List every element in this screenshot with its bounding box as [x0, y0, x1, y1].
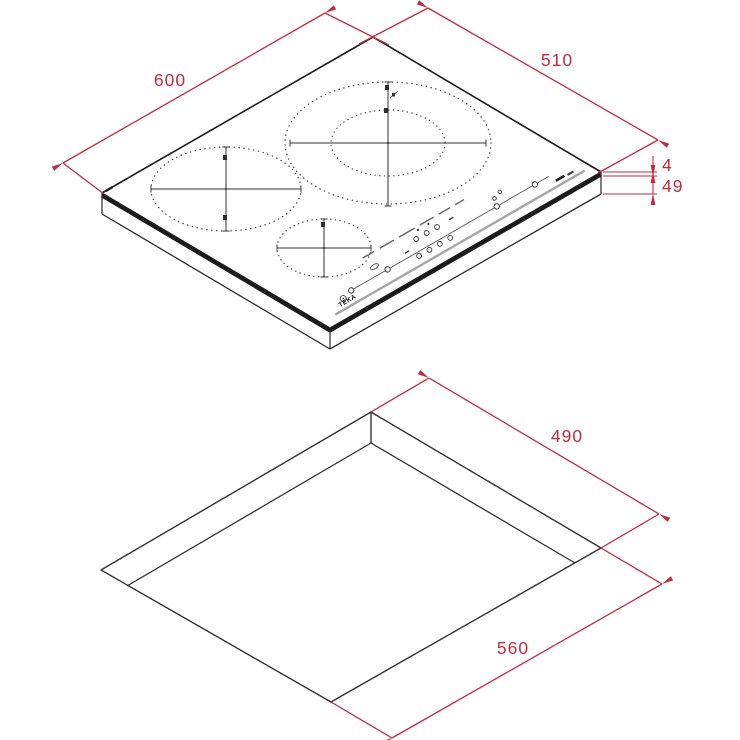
worktop-cutout-view: 490 560 [101, 378, 662, 738]
extension-line [63, 163, 104, 194]
zone-micro-label [223, 215, 227, 220]
hob-isometric-view: TEKA [63, 8, 683, 349]
dimension-label-4: 4 [662, 155, 673, 175]
extension-line [325, 13, 389, 45]
dimension-label-490: 490 [551, 426, 583, 446]
zone-micro-label [384, 108, 388, 113]
zone-center-dot [225, 188, 227, 190]
dimension-4-49: 4 49 [603, 155, 683, 196]
installation-drawing: TEKA [0, 0, 740, 740]
extension-line [598, 140, 658, 173]
zone-center-dot [387, 142, 389, 144]
extension-line [331, 702, 392, 738]
zone-center-dot [323, 247, 325, 249]
zone-micro-label [321, 222, 325, 227]
zone-micro-label [223, 155, 227, 160]
extension-line [371, 378, 429, 412]
dimension-label-600: 600 [154, 70, 186, 90]
extension-line [359, 8, 428, 44]
zone-micro-label [385, 85, 389, 90]
extension-lines [603, 172, 657, 194]
dimension-label-49: 49 [662, 176, 683, 196]
dimension-label-510: 510 [541, 50, 573, 70]
extension-line [601, 548, 662, 584]
dimension-label-560: 560 [497, 638, 529, 658]
extension-line [601, 514, 659, 548]
zone-micro-label [392, 93, 395, 97]
installation-drawing-page: TEKA [0, 0, 740, 740]
